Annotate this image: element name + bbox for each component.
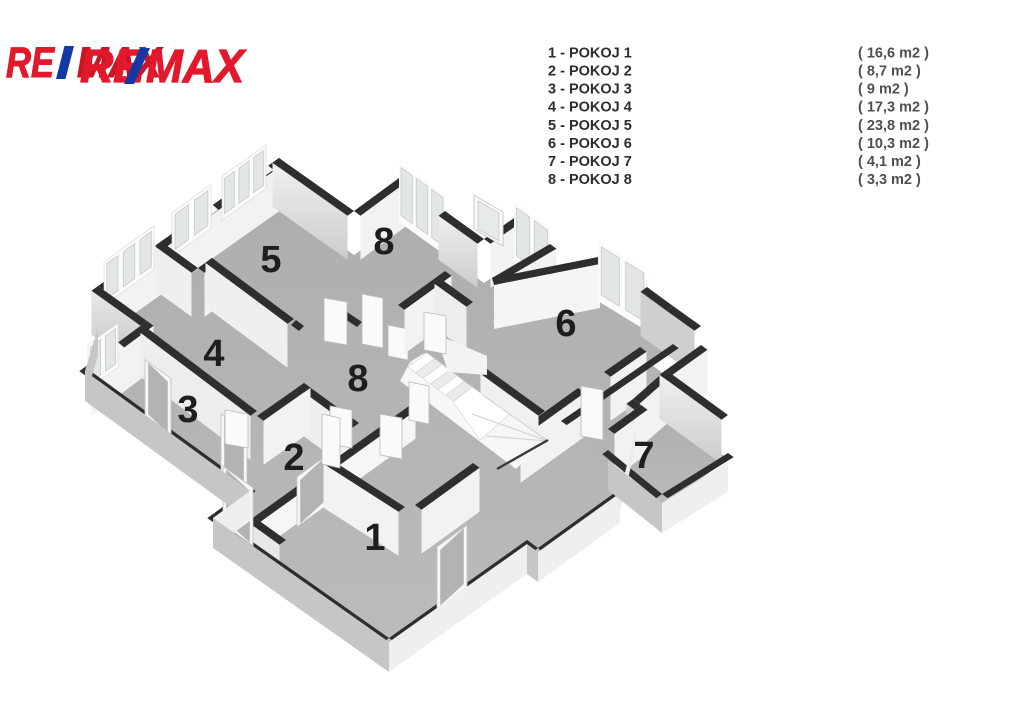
svg-text:MAX: MAX (146, 40, 246, 92)
svg-text:4 - POKOJ 4: 4 - POKOJ 4 (548, 100, 632, 116)
svg-text:2: 2 (283, 437, 304, 479)
svg-text:( 16,6 m2 ): ( 16,6 m2 ) (858, 46, 929, 62)
svg-text:( 8,7 m2 ): ( 8,7 m2 ) (858, 64, 921, 80)
svg-text:5: 5 (260, 239, 281, 281)
svg-text:5 - POKOJ 5: 5 - POKOJ 5 (548, 118, 632, 134)
svg-text:( 23,8 m2 ): ( 23,8 m2 ) (858, 118, 929, 134)
svg-text:7 - POKOJ 7: 7 - POKOJ 7 (548, 154, 632, 170)
svg-text:RE: RE (6, 39, 55, 87)
svg-text:3 - POKOJ 3: 3 - POKOJ 3 (548, 82, 632, 98)
svg-text:8: 8 (347, 358, 368, 400)
svg-text:3: 3 (177, 389, 198, 431)
svg-text:4: 4 (203, 333, 224, 375)
svg-text:( 9 m2 ): ( 9 m2 ) (858, 82, 909, 98)
svg-text:( 4,1 m2 ): ( 4,1 m2 ) (858, 154, 921, 170)
svg-text:2 - POKOJ 2: 2 - POKOJ 2 (548, 64, 632, 80)
svg-text:( 17,3 m2 ): ( 17,3 m2 ) (858, 100, 929, 116)
svg-text:6: 6 (555, 303, 576, 345)
svg-text:1: 1 (364, 517, 385, 559)
svg-text:8 - POKOJ 8: 8 - POKOJ 8 (548, 172, 632, 188)
svg-text:( 3,3 m2 ): ( 3,3 m2 ) (858, 172, 921, 188)
svg-text:8: 8 (373, 221, 394, 263)
svg-text:6 - POKOJ 6: 6 - POKOJ 6 (548, 136, 632, 152)
svg-text:( 10,3 m2 ): ( 10,3 m2 ) (858, 136, 929, 152)
svg-text:7: 7 (633, 435, 654, 477)
svg-text:1 - POKOJ 1: 1 - POKOJ 1 (548, 46, 632, 62)
